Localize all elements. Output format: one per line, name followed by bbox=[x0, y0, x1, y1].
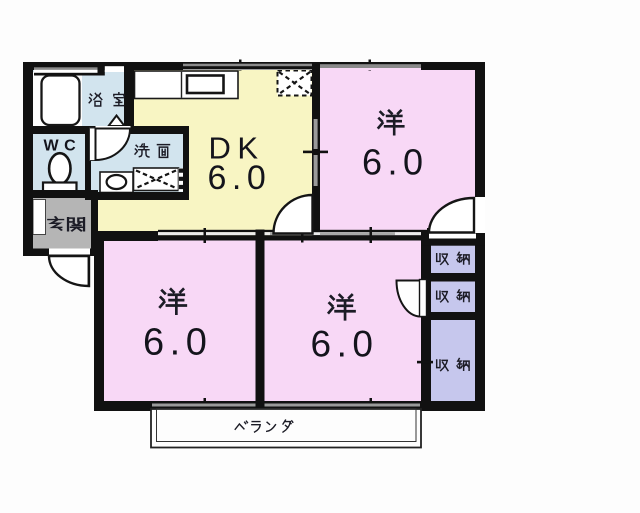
svg-text:6.0: 6.0 bbox=[143, 322, 212, 364]
svg-text:6.0: 6.0 bbox=[362, 142, 429, 183]
svg-text:WC: WC bbox=[44, 138, 82, 155]
svg-text:6.0: 6.0 bbox=[311, 324, 379, 365]
svg-text:6.0: 6.0 bbox=[208, 159, 272, 197]
